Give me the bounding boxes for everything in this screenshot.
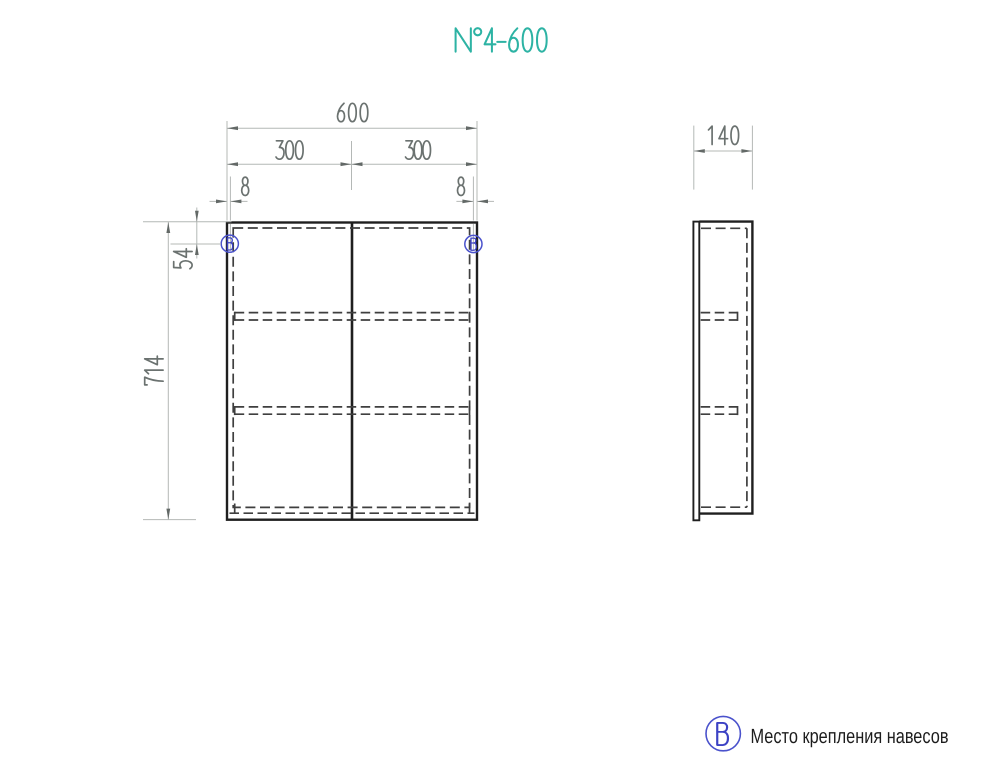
svg-text:Место крепления навесов: Место крепления навесов	[751, 725, 949, 748]
